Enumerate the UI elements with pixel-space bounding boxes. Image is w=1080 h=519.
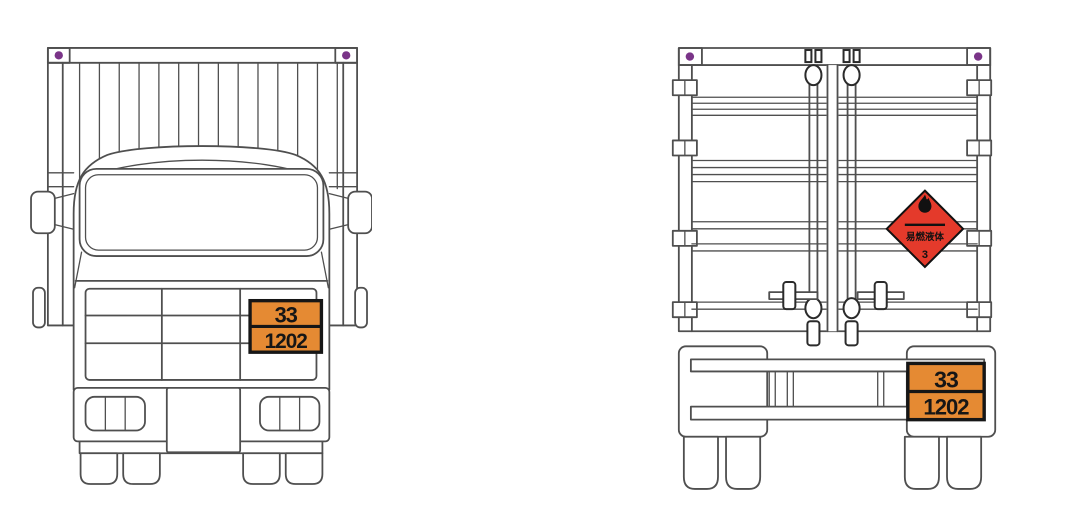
class3-hazard-diamond: 易燃液体 3	[887, 191, 963, 267]
truck-rear-view-drawing: 易燃液体 3 33 1202	[658, 45, 1006, 497]
truck-front-view-drawing: 33 1202	[30, 40, 372, 486]
corner-marker-icon	[55, 51, 63, 59]
placard-hazard-id: 33	[934, 367, 959, 393]
rear-doors	[692, 50, 977, 345]
placard-un-number: 1202	[923, 395, 969, 420]
headlight-left	[86, 397, 145, 431]
side-mirror-left	[31, 192, 74, 234]
side-guard-left	[33, 288, 45, 328]
hazard-label-text: 易燃液体	[906, 231, 945, 243]
side-guard-right	[355, 288, 367, 328]
rear-wheels	[684, 437, 981, 489]
truck-front-view: 33 1202	[30, 40, 372, 486]
windshield	[80, 169, 324, 256]
side-mirror-right	[329, 192, 372, 234]
front-wheels	[81, 453, 323, 484]
hazard-class-number: 3	[922, 249, 928, 261]
headlight-right	[260, 397, 319, 431]
truck-rear-view: 易燃液体 3 33 1202	[658, 45, 1006, 497]
corner-marker-icon	[342, 51, 350, 59]
lock-rod-right	[844, 50, 860, 345]
orange-placard-front: 33 1202	[250, 301, 321, 354]
chassis-struts	[769, 371, 884, 406]
placard-hazard-id: 33	[275, 302, 298, 327]
placard-un-number: 1202	[265, 330, 308, 353]
corner-marker-icon	[974, 52, 982, 60]
bumper-center-recess	[167, 388, 240, 452]
door-handle-right	[858, 282, 904, 309]
orange-placard-rear: 33 1202	[908, 363, 984, 419]
corner-marker-icon	[686, 52, 694, 60]
lock-rod-left	[805, 50, 821, 345]
front-bumper	[74, 388, 330, 453]
